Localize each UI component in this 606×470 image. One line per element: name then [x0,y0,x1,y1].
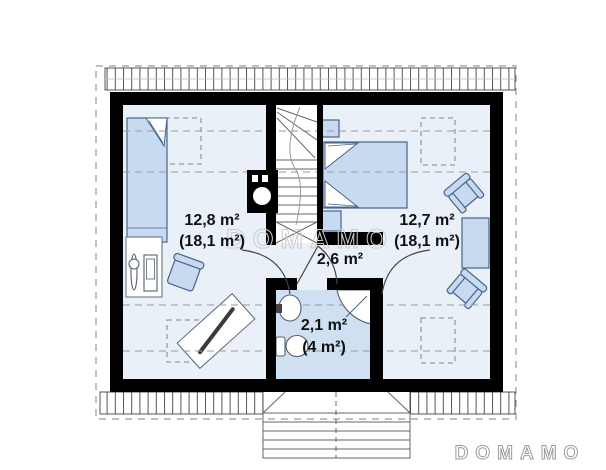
nightstand-top [322,120,339,137]
chimney-flue-icon [247,170,278,213]
bed-double [323,142,407,208]
bathroom-label: 2,1 m² (4 m²) [254,315,394,359]
bathroom-area-total: (4 m²) [254,337,394,359]
bedroom-left-area: 12,8 m² [132,210,292,231]
entrance-steps [263,392,410,458]
bedroom-right-area: 12,7 m² [347,210,507,231]
brand-logo: DOMAMO [455,443,586,464]
bedroom-left-area-total: (18,1 m²) [132,231,292,252]
floor-plan-page: DOMAMO DOMAMO 12,8 m² (18,1 m²) 12,7 m² … [0,0,606,470]
hall-area: 2,6 m² [270,249,410,270]
bedroom-left-label: 12,8 m² (18,1 m²) [132,210,292,252]
hall-label: 2,6 m² [270,249,410,270]
floor-plan-canvas: DOMAMO DOMAMO [0,0,606,470]
bathroom-area: 2,1 m² [254,315,394,337]
bedroom-right-label: 12,7 m² (18,1 m²) [347,210,507,252]
roof-eaves-hatch-bottom-left [100,392,263,414]
roof-eaves-hatch-top [105,68,515,90]
roof-eaves-hatch-bottom-right [410,392,515,414]
